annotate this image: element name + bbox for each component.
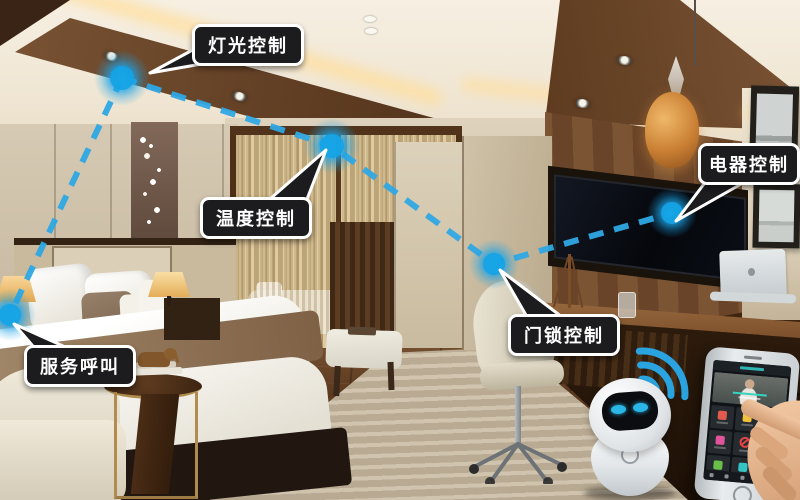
callout-light-control: 灯光控制 [192, 24, 304, 66]
callout-service-call: 服务呼叫 [24, 345, 136, 387]
nav-icon [740, 476, 744, 480]
nav-icon [771, 478, 775, 482]
app-tile [733, 432, 758, 457]
table-lamp-base [167, 296, 171, 306]
app-tile-icon [718, 410, 728, 420]
app-tile [760, 409, 785, 434]
slatted-cabinet [330, 222, 394, 336]
partition-top-rail [230, 126, 462, 135]
app-tile-label [766, 426, 778, 429]
app-tile-label [716, 421, 728, 424]
callout-light-control-text: 灯光控制 [208, 36, 288, 56]
ceiling-vent [364, 16, 376, 22]
app-tile-icon [766, 440, 776, 450]
callout-door-lock-control: 门锁控制 [508, 314, 620, 356]
desk-chair-base [462, 438, 572, 484]
robot [580, 374, 680, 500]
phone-screen [703, 360, 791, 486]
callout-door-lock-control-text: 门锁控制 [524, 326, 604, 346]
nav-icon-active [756, 477, 760, 481]
app-tile-label [764, 451, 776, 454]
app-tile [708, 430, 733, 455]
apple-logo-icon [748, 268, 755, 276]
floral-accent-panel [131, 122, 178, 240]
app-tile-icon [743, 413, 753, 423]
callout-temperature-control-text: 温度控制 [216, 209, 296, 229]
closet-panel [394, 142, 466, 348]
smart-hotel-room-photo: 灯光控制 温度控制 电器控制 门锁控制 服务呼叫 [0, 0, 800, 500]
callout-appliance-control: 电器控制 [698, 143, 800, 185]
door-handle [494, 254, 498, 270]
nav-icon [709, 473, 713, 477]
callout-appliance-control-text: 电器控制 [709, 155, 789, 175]
app-tile-icon [738, 462, 748, 472]
app-tile-icon [768, 415, 778, 425]
app-tile-icon [740, 436, 752, 448]
smartphone [694, 346, 800, 500]
phone-hero-image [712, 372, 788, 408]
callout-service-call-text: 服务呼叫 [40, 357, 120, 377]
app-tile-label [741, 423, 753, 426]
ottoman-tray [348, 327, 376, 336]
picture-frame-photo [759, 190, 795, 243]
home-button [732, 485, 753, 500]
app-tile [758, 434, 783, 459]
app-tile-icon [715, 435, 725, 445]
pendant-lamp [645, 92, 699, 168]
app-tile-icon [713, 460, 723, 470]
glass-kettle [618, 292, 636, 318]
ottoman-leg [388, 362, 395, 390]
nav-icon [725, 474, 729, 478]
app-tile-label [739, 449, 751, 452]
robot-face [601, 390, 660, 432]
callout-temperature-control: 温度控制 [200, 197, 312, 239]
app-tile [710, 405, 735, 430]
app-tile [735, 407, 760, 432]
phone-speaker [744, 355, 762, 360]
desk-chair-pole [515, 386, 521, 446]
tripod-decor [568, 254, 571, 308]
ceiling-vent [365, 28, 377, 34]
armchair-seat [0, 420, 126, 500]
app-tile-icon [764, 465, 774, 475]
pendant-cord [694, 0, 696, 66]
nightstand [164, 298, 220, 340]
app-tile-label [714, 446, 726, 449]
